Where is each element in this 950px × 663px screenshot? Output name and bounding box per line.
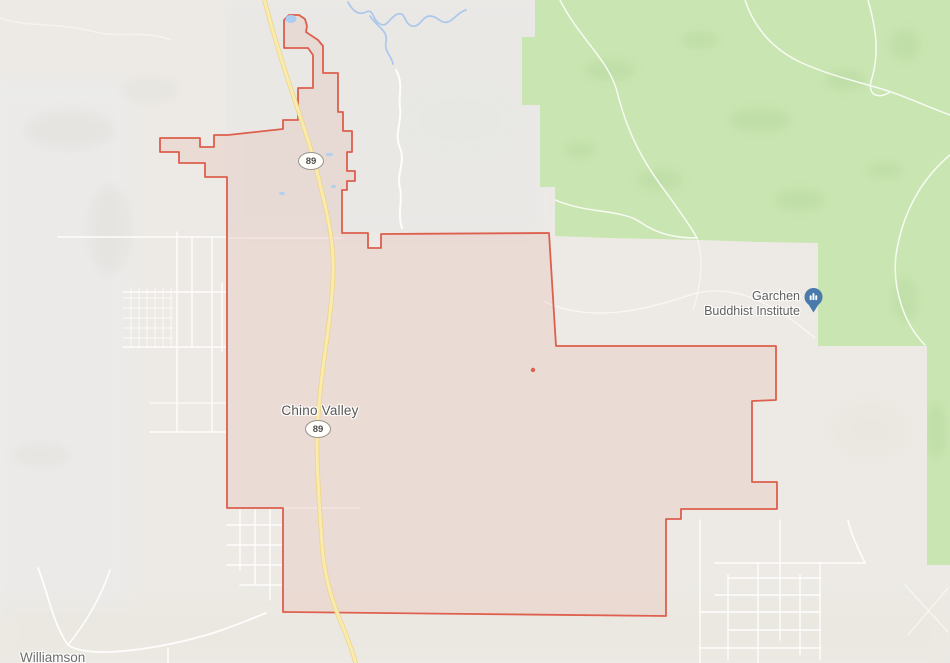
route-89-shield-south: 89	[305, 420, 331, 438]
locality-label-williamson[interactable]: Williamson	[20, 650, 85, 663]
boundary-exclave-dot	[531, 368, 535, 372]
buddhist-institute-pin-icon[interactable]	[803, 287, 824, 313]
map-viewport[interactable]: 89 89 Chino Valley Garchen Buddhist Inst…	[0, 0, 950, 663]
route-89-shield-south-label: 89	[313, 424, 324, 435]
map-canvas[interactable]	[0, 0, 950, 663]
poi-label-line2: Buddhist Institute	[704, 304, 800, 319]
pond	[286, 15, 297, 23]
route-89-shield-north: 89	[298, 152, 324, 170]
poi-label-line1: Garchen	[704, 289, 800, 304]
poi-label-garchen-buddhist-institute[interactable]: Garchen Buddhist Institute	[704, 289, 800, 318]
route-89-shield-north-label: 89	[306, 156, 317, 167]
town-label-chino-valley[interactable]: Chino Valley	[260, 403, 380, 418]
